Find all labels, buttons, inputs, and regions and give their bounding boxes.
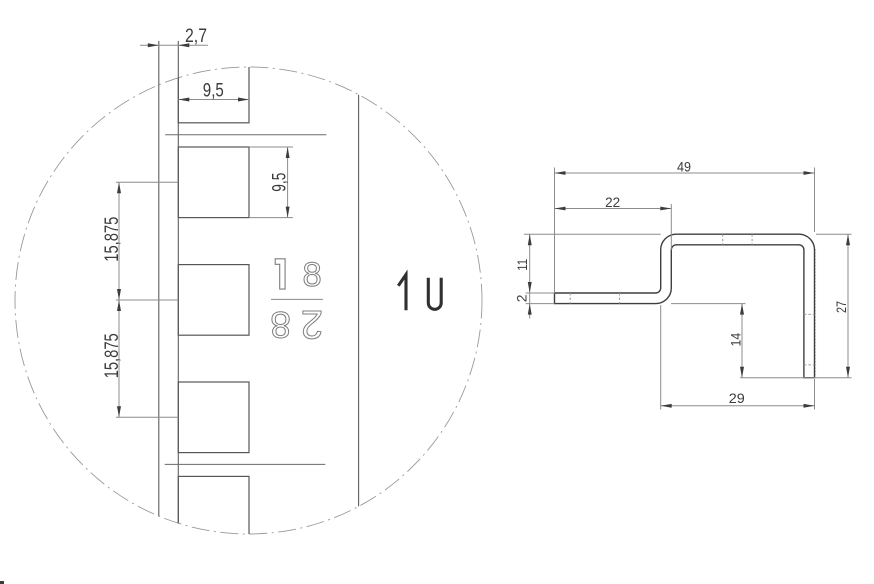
svg-text:11: 11 <box>514 259 530 271</box>
svg-text:2: 2 <box>301 302 323 346</box>
svg-text:9,5: 9,5 <box>203 81 224 102</box>
svg-text:8: 8 <box>302 256 321 294</box>
svg-text:2: 2 <box>514 294 530 302</box>
svg-text:14: 14 <box>727 333 743 347</box>
svg-text:9,5: 9,5 <box>270 173 291 192</box>
svg-text:22: 22 <box>605 194 620 210</box>
svg-text:27: 27 <box>833 301 849 313</box>
svg-text:15,875: 15,875 <box>102 217 123 262</box>
svg-text:15,875: 15,875 <box>102 333 123 378</box>
svg-text:29: 29 <box>729 390 745 406</box>
svg-text:8: 8 <box>270 304 291 345</box>
svg-text:2,7: 2,7 <box>185 26 207 47</box>
svg-text:49: 49 <box>677 159 691 175</box>
